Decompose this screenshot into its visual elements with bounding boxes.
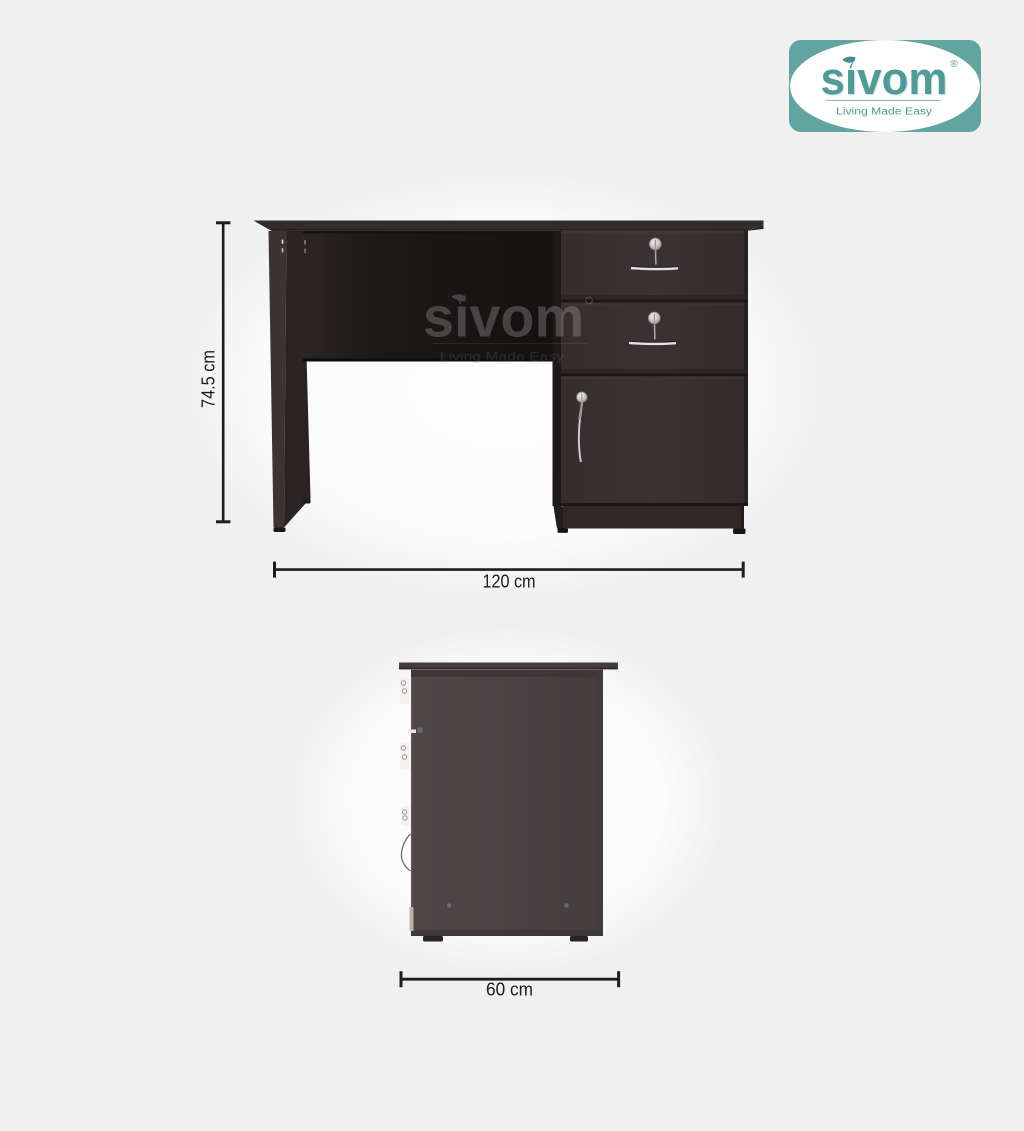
svg-text:sivom: sivom [423, 286, 584, 350]
svg-text:Living Made Easy: Living Made Easy [836, 107, 932, 118]
svg-text:sivom: sivom [821, 53, 948, 104]
svg-text:®: ® [950, 59, 958, 70]
svg-text:60 cm: 60 cm [486, 980, 533, 1000]
svg-text:Living Made Easy: Living Made Easy [440, 352, 564, 364]
svg-text:74.5 cm: 74.5 cm [199, 350, 219, 408]
svg-text:120 cm: 120 cm [483, 572, 536, 592]
